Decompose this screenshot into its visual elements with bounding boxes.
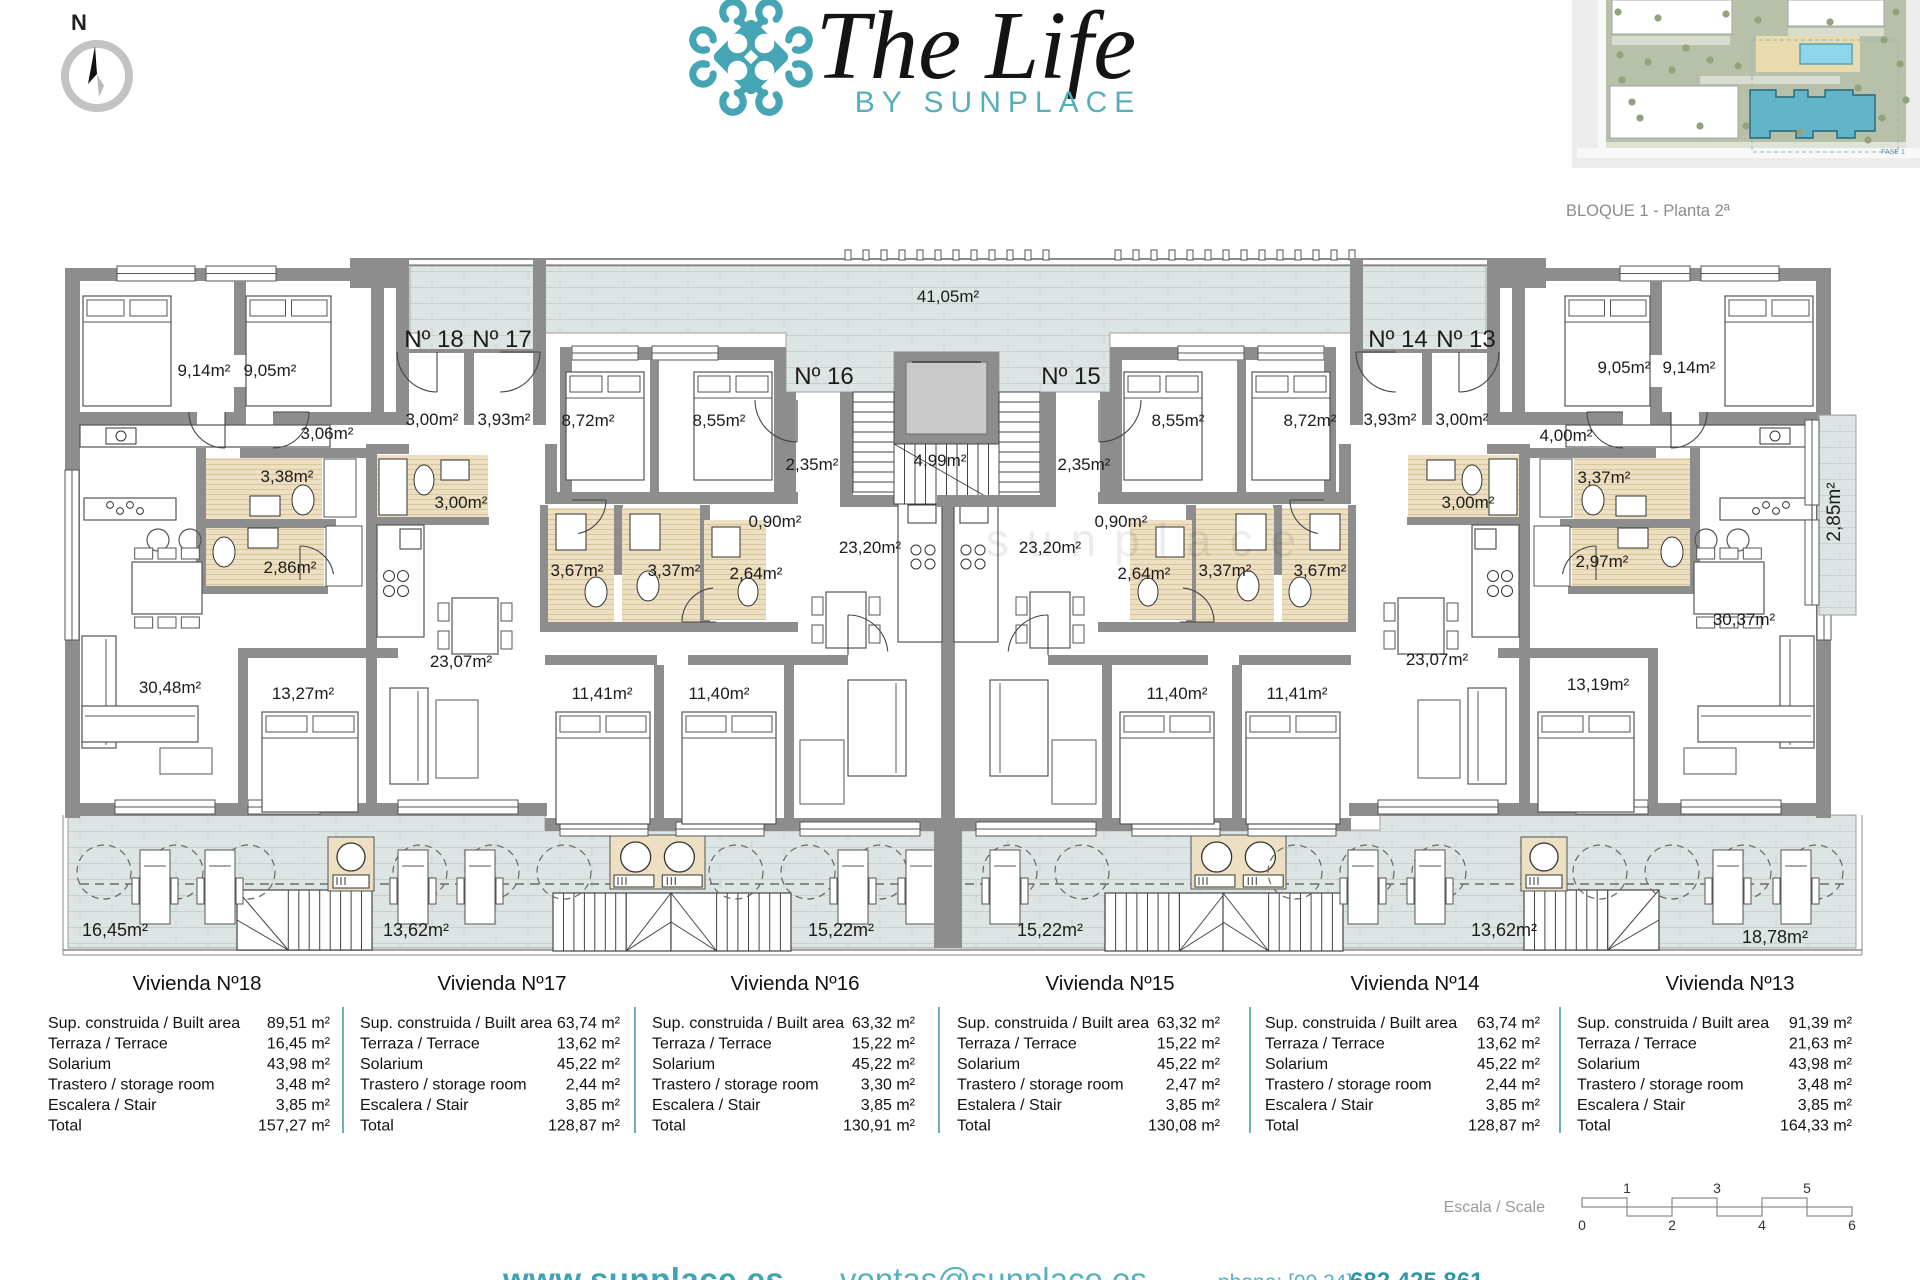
svg-text:11,40m²: 11,40m² <box>1146 684 1207 703</box>
svg-text:Estalera / Stair: Estalera / Stair <box>957 1097 1063 1114</box>
svg-text:3,37m²: 3,37m² <box>648 561 701 580</box>
svg-text:3,00m²: 3,00m² <box>406 410 459 429</box>
svg-text:130,08 m²: 130,08 m² <box>1148 1118 1221 1135</box>
svg-text:3,85 m²: 3,85 m² <box>276 1097 331 1114</box>
svg-text:3,30 m²: 3,30 m² <box>861 1077 916 1094</box>
svg-text:8,55m²: 8,55m² <box>693 411 746 430</box>
svg-text:Escalera / Stair: Escalera / Stair <box>360 1097 469 1114</box>
svg-text:Total: Total <box>48 1118 82 1135</box>
svg-text:43,98 m²: 43,98 m² <box>267 1056 331 1073</box>
svg-text:16,45m²: 16,45m² <box>82 920 148 940</box>
svg-text:3,00m²: 3,00m² <box>435 493 488 512</box>
svg-text:Escalera / Stair: Escalera / Stair <box>48 1097 157 1114</box>
svg-text:43,98 m²: 43,98 m² <box>1789 1056 1853 1073</box>
svg-text:Vivienda Nº16: Vivienda Nº16 <box>730 972 859 995</box>
svg-text:2,47 m²: 2,47 m² <box>1166 1077 1221 1094</box>
svg-text:15,22m²: 15,22m² <box>808 920 874 940</box>
svg-text:0,90m²: 0,90m² <box>1095 512 1148 531</box>
svg-text:13,19m²: 13,19m² <box>1567 675 1630 694</box>
svg-text:Terraza / Terrace: Terraza / Terrace <box>1577 1036 1697 1053</box>
svg-text:23,20m²: 23,20m² <box>1019 538 1082 557</box>
svg-text:phone: [00 34]: phone: [00 34] <box>1218 1271 1352 1280</box>
svg-text:3,67m²: 3,67m² <box>1294 561 1347 580</box>
svg-text:Solarium: Solarium <box>48 1056 111 1073</box>
svg-text:30,37m²: 30,37m² <box>1713 610 1776 629</box>
svg-text:11,40m²: 11,40m² <box>688 684 749 703</box>
svg-text:157,27 m²: 157,27 m² <box>258 1118 331 1135</box>
svg-text:8,72m²: 8,72m² <box>562 411 615 430</box>
svg-text:Vivienda Nº18: Vivienda Nº18 <box>132 972 261 995</box>
svg-text:3,06m²: 3,06m² <box>301 424 354 443</box>
svg-text:Escalera / Stair: Escalera / Stair <box>1265 1097 1374 1114</box>
svg-text:3: 3 <box>1713 1180 1721 1196</box>
svg-text:Trastero / storage room: Trastero / storage room <box>48 1077 215 1094</box>
svg-text:2,97m²: 2,97m² <box>1576 552 1629 571</box>
svg-text:2,86m²: 2,86m² <box>264 558 317 577</box>
svg-text:Solarium: Solarium <box>360 1056 423 1073</box>
svg-text:2,35m²: 2,35m² <box>786 455 839 474</box>
svg-text:3,37m²: 3,37m² <box>1199 561 1252 580</box>
svg-text:3,85 m²: 3,85 m² <box>1166 1097 1221 1114</box>
svg-text:128,87 m²: 128,87 m² <box>1468 1118 1541 1135</box>
svg-text:23,07m²: 23,07m² <box>1406 650 1469 669</box>
svg-text:13,62 m²: 13,62 m² <box>1477 1036 1541 1053</box>
svg-text:The Life: The Life <box>816 0 1137 99</box>
svg-text:128,87 m²: 128,87 m² <box>548 1118 621 1135</box>
svg-text:0,90m²: 0,90m² <box>749 512 802 531</box>
svg-text:3,00m²: 3,00m² <box>1442 493 1495 512</box>
svg-text:13,62m²: 13,62m² <box>383 920 449 940</box>
svg-text:2,44 m²: 2,44 m² <box>1486 1077 1541 1094</box>
svg-text:3,85 m²: 3,85 m² <box>1486 1097 1541 1114</box>
svg-text:Escalera / Stair: Escalera / Stair <box>1577 1097 1686 1114</box>
svg-text:13,62 m²: 13,62 m² <box>557 1036 621 1053</box>
svg-text:3,85 m²: 3,85 m² <box>1798 1097 1853 1114</box>
svg-text:45,22 m²: 45,22 m² <box>1477 1056 1541 1073</box>
svg-text:2,64m²: 2,64m² <box>1118 564 1171 583</box>
svg-text:13,27m²: 13,27m² <box>272 684 335 703</box>
svg-text:BLOQUE 1 - Planta 2ª: BLOQUE 1 - Planta 2ª <box>1566 202 1731 220</box>
svg-text:21,63 m²: 21,63 m² <box>1789 1036 1853 1053</box>
svg-text:Vivienda Nº13: Vivienda Nº13 <box>1665 972 1794 995</box>
svg-text:Total: Total <box>360 1118 394 1135</box>
svg-text:Escala / Scale: Escala / Scale <box>1444 1199 1545 1216</box>
svg-text:Nº 15: Nº 15 <box>1041 363 1100 390</box>
svg-text:-: - <box>1192 1267 1201 1280</box>
svg-text:Vivienda Nº17: Vivienda Nº17 <box>437 972 566 995</box>
svg-text:2: 2 <box>1668 1217 1676 1233</box>
svg-text:16,45 m²: 16,45 m² <box>267 1036 331 1053</box>
svg-text:Terraza / Terrace: Terraza / Terrace <box>1265 1036 1385 1053</box>
svg-text:63,74 m²: 63,74 m² <box>1477 1015 1541 1032</box>
svg-text:3,00m²: 3,00m² <box>1436 410 1489 429</box>
svg-text:Trastero / storage room: Trastero / storage room <box>1265 1077 1432 1094</box>
svg-text:13,62m²: 13,62m² <box>1471 920 1537 940</box>
svg-text:Terraza / Terrace: Terraza / Terrace <box>652 1036 772 1053</box>
svg-text:2,85m²: 2,85m² <box>1824 482 1845 541</box>
svg-text:0: 0 <box>1578 1217 1586 1233</box>
svg-text:Trastero / storage room: Trastero / storage room <box>957 1077 1124 1094</box>
svg-text:30,48m²: 30,48m² <box>139 678 202 697</box>
svg-text:164,33 m²: 164,33 m² <box>1780 1118 1853 1135</box>
svg-text:4: 4 <box>1758 1217 1766 1233</box>
svg-text:45,22 m²: 45,22 m² <box>557 1056 621 1073</box>
svg-text:41,05m²: 41,05m² <box>917 287 980 306</box>
svg-text:2,44 m²: 2,44 m² <box>566 1077 621 1094</box>
svg-text:Total: Total <box>957 1118 991 1135</box>
svg-text:1: 1 <box>1623 1180 1631 1196</box>
svg-text:2,64m²: 2,64m² <box>730 564 783 583</box>
svg-text:3,48 m²: 3,48 m² <box>1798 1077 1853 1094</box>
svg-text:Vivienda Nº15: Vivienda Nº15 <box>1045 972 1174 995</box>
svg-text:2,35m²: 2,35m² <box>1058 455 1111 474</box>
svg-text:Trastero / storage room: Trastero / storage room <box>652 1077 819 1094</box>
svg-text:15,22 m²: 15,22 m² <box>1157 1036 1221 1053</box>
svg-text:11,41m²: 11,41m² <box>1266 684 1327 703</box>
svg-text:89,51 m²: 89,51 m² <box>267 1015 331 1032</box>
svg-text:Terraza / Terrace: Terraza / Terrace <box>48 1036 168 1053</box>
svg-text:Sup. construida / Built area: Sup. construida / Built area <box>957 1015 1149 1032</box>
svg-text:15,22m²: 15,22m² <box>1017 920 1083 940</box>
svg-text:Terraza / Terrace: Terraza / Terrace <box>957 1036 1077 1053</box>
svg-text:45,22 m²: 45,22 m² <box>1157 1056 1221 1073</box>
svg-text:Terraza / Terrace: Terraza / Terrace <box>360 1036 480 1053</box>
svg-text:Sup. construida / Built area: Sup. construida / Built area <box>1265 1015 1457 1032</box>
svg-text:Sup. construida / Built area: Sup. construida / Built area <box>360 1015 552 1032</box>
svg-text:4,00m²: 4,00m² <box>1540 426 1593 445</box>
svg-text:23,20m²: 23,20m² <box>839 538 902 557</box>
svg-text:FASE 1: FASE 1 <box>1881 149 1905 156</box>
svg-text:BY SUNPLACE: BY SUNPLACE <box>855 86 1142 119</box>
svg-text:Total: Total <box>1265 1118 1299 1135</box>
svg-text:9,14m²: 9,14m² <box>178 361 231 380</box>
svg-text:3,67m²: 3,67m² <box>551 561 604 580</box>
svg-text:Solarium: Solarium <box>1577 1056 1640 1073</box>
svg-text:682 425 861: 682 425 861 <box>1350 1268 1483 1280</box>
svg-text:3,37m²: 3,37m² <box>1578 468 1631 487</box>
svg-text:9,05m²: 9,05m² <box>244 361 297 380</box>
svg-text:4,99m²: 4,99m² <box>914 451 967 470</box>
svg-text:63,32 m²: 63,32 m² <box>1157 1015 1221 1032</box>
svg-text:Total: Total <box>652 1118 686 1135</box>
svg-text:23,07m²: 23,07m² <box>430 652 493 671</box>
svg-text:-: - <box>812 1265 822 1280</box>
svg-text:3,48 m²: 3,48 m² <box>276 1077 331 1094</box>
svg-text:Sup. construida / Built area: Sup. construida / Built area <box>48 1015 240 1032</box>
svg-text:11,41m²: 11,41m² <box>571 684 632 703</box>
svg-text:63,32 m²: 63,32 m² <box>852 1015 916 1032</box>
svg-text:Trastero / storage room: Trastero / storage room <box>360 1077 527 1094</box>
svg-text:63,74 m²: 63,74 m² <box>557 1015 621 1032</box>
svg-text:3,85 m²: 3,85 m² <box>566 1097 621 1114</box>
svg-text:Solarium: Solarium <box>957 1056 1020 1073</box>
svg-text:Vivienda Nº14: Vivienda Nº14 <box>1350 972 1479 995</box>
svg-text:Nº 16: Nº 16 <box>794 363 853 390</box>
svg-text:Solarium: Solarium <box>652 1056 715 1073</box>
svg-text:Nº 18: Nº 18 <box>404 326 463 353</box>
svg-text:5: 5 <box>1803 1180 1811 1196</box>
svg-text:ventas@sunplace.es: ventas@sunplace.es <box>840 1261 1147 1280</box>
svg-text:Sup. construida / Built area: Sup. construida / Built area <box>1577 1015 1769 1032</box>
svg-text:Nº 13: Nº 13 <box>1436 326 1495 353</box>
svg-text:8,72m²: 8,72m² <box>1284 411 1337 430</box>
svg-text:45,22 m²: 45,22 m² <box>852 1056 916 1073</box>
svg-text:9,05m²: 9,05m² <box>1598 358 1651 377</box>
svg-text:www.sunplace.es: www.sunplace.es <box>502 1261 784 1280</box>
svg-text:Solarium: Solarium <box>1265 1056 1328 1073</box>
svg-text:Escalera / Stair: Escalera / Stair <box>652 1097 761 1114</box>
svg-text:3,93m²: 3,93m² <box>1364 410 1417 429</box>
svg-text:3,38m²: 3,38m² <box>261 467 314 486</box>
svg-text:Trastero / storage room: Trastero / storage room <box>1577 1077 1744 1094</box>
svg-text:6: 6 <box>1848 1217 1856 1233</box>
svg-text:Total: Total <box>1577 1118 1611 1135</box>
svg-text:3,85 m²: 3,85 m² <box>861 1097 916 1114</box>
svg-text:130,91 m²: 130,91 m² <box>843 1118 916 1135</box>
svg-text:Nº 17: Nº 17 <box>472 326 531 353</box>
svg-text:3,93m²: 3,93m² <box>478 410 531 429</box>
svg-text:Nº 14: Nº 14 <box>1368 326 1427 353</box>
svg-text:9,14m²: 9,14m² <box>1663 358 1716 377</box>
svg-text:91,39 m²: 91,39 m² <box>1789 1015 1853 1032</box>
svg-text:8,55m²: 8,55m² <box>1152 411 1205 430</box>
svg-text:18,78m²: 18,78m² <box>1742 927 1808 947</box>
svg-text:N: N <box>71 10 87 35</box>
svg-text:Sup. construida / Built area: Sup. construida / Built area <box>652 1015 844 1032</box>
svg-text:15,22 m²: 15,22 m² <box>852 1036 916 1053</box>
